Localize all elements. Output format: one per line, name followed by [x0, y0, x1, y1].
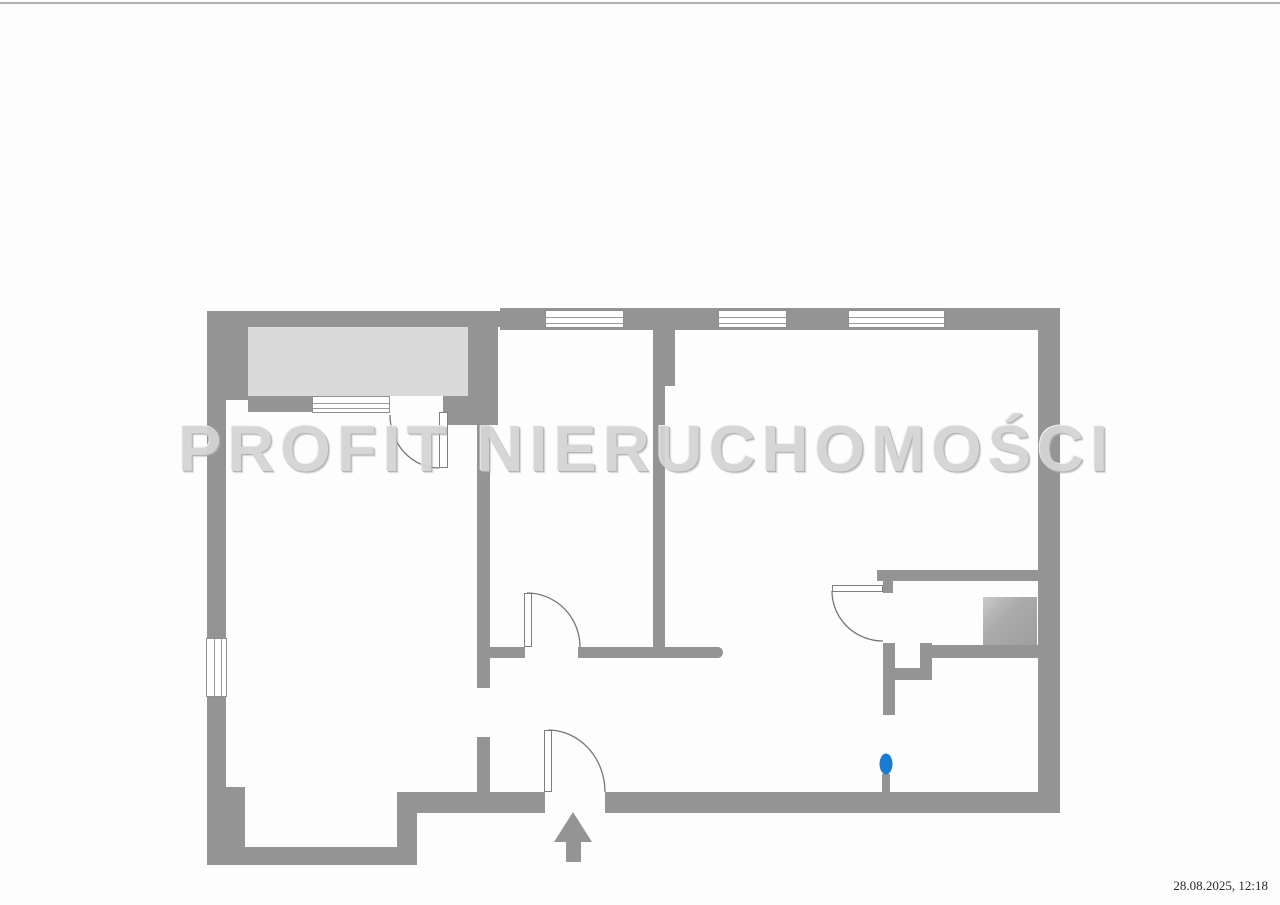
window-left-mullion: [214, 639, 215, 696]
entrance-door-arc: [548, 730, 605, 792]
bath-wall-c: [920, 643, 932, 680]
bottom-wall-mid: [417, 792, 545, 813]
entrance-arrow-head: [554, 812, 592, 842]
window-top-1: [545, 310, 624, 328]
hall-wall-main: [578, 647, 723, 658]
balcony-right-wall: [468, 327, 498, 397]
timestamp: 28.08.2025, 12:18: [1173, 878, 1268, 894]
window-balcony-mullion: [313, 408, 389, 409]
bath-door-stub: [883, 581, 893, 593]
window-left: [206, 638, 227, 697]
divider-left-lower: [477, 737, 490, 793]
kitchen-door-arc: [527, 593, 580, 647]
watermark: PROFIT NIERUCHOMOŚCI: [178, 416, 1114, 481]
bath-wall-a: [883, 643, 895, 715]
hall-wall-stub: [490, 647, 525, 658]
bath-wall-d: [932, 645, 1038, 658]
bath-top-wall: [877, 570, 1038, 581]
balcony-floor: [248, 327, 468, 396]
bottom-wall-left: [207, 847, 397, 865]
bathroom-appliance: [983, 597, 1037, 645]
top-wall-balcony: [207, 311, 500, 327]
entrance-door-leaf: [544, 730, 552, 792]
marker-stub: [882, 774, 890, 794]
window-top-3: [848, 310, 945, 328]
window-top-2: [718, 310, 787, 328]
window-balcony: [312, 396, 390, 413]
window-balcony-mullion: [313, 403, 389, 404]
window-top-3-mullion: [849, 317, 944, 318]
window-top-2-mullion: [719, 323, 786, 324]
entrance-arrow-shaft: [566, 840, 581, 862]
bathroom-door-arc: [832, 591, 883, 641]
window-top-2-mullion: [719, 317, 786, 318]
left-wall-upper: [207, 311, 248, 400]
window-top-1-mullion: [546, 317, 623, 318]
bottom-wall-right: [605, 792, 1060, 813]
utility-marker: [880, 754, 893, 775]
window-left-mullion: [221, 639, 222, 696]
divider-mid-upper: [653, 330, 675, 386]
bottom-step: [397, 792, 417, 865]
window-top-1-mullion: [546, 323, 623, 324]
right-wall: [1038, 308, 1060, 813]
window-top-3-mullion: [849, 323, 944, 324]
bathroom-door-leaf: [832, 585, 883, 592]
kitchen-door-leaf: [524, 593, 532, 647]
balcony-bottom-wall-left: [248, 396, 313, 412]
